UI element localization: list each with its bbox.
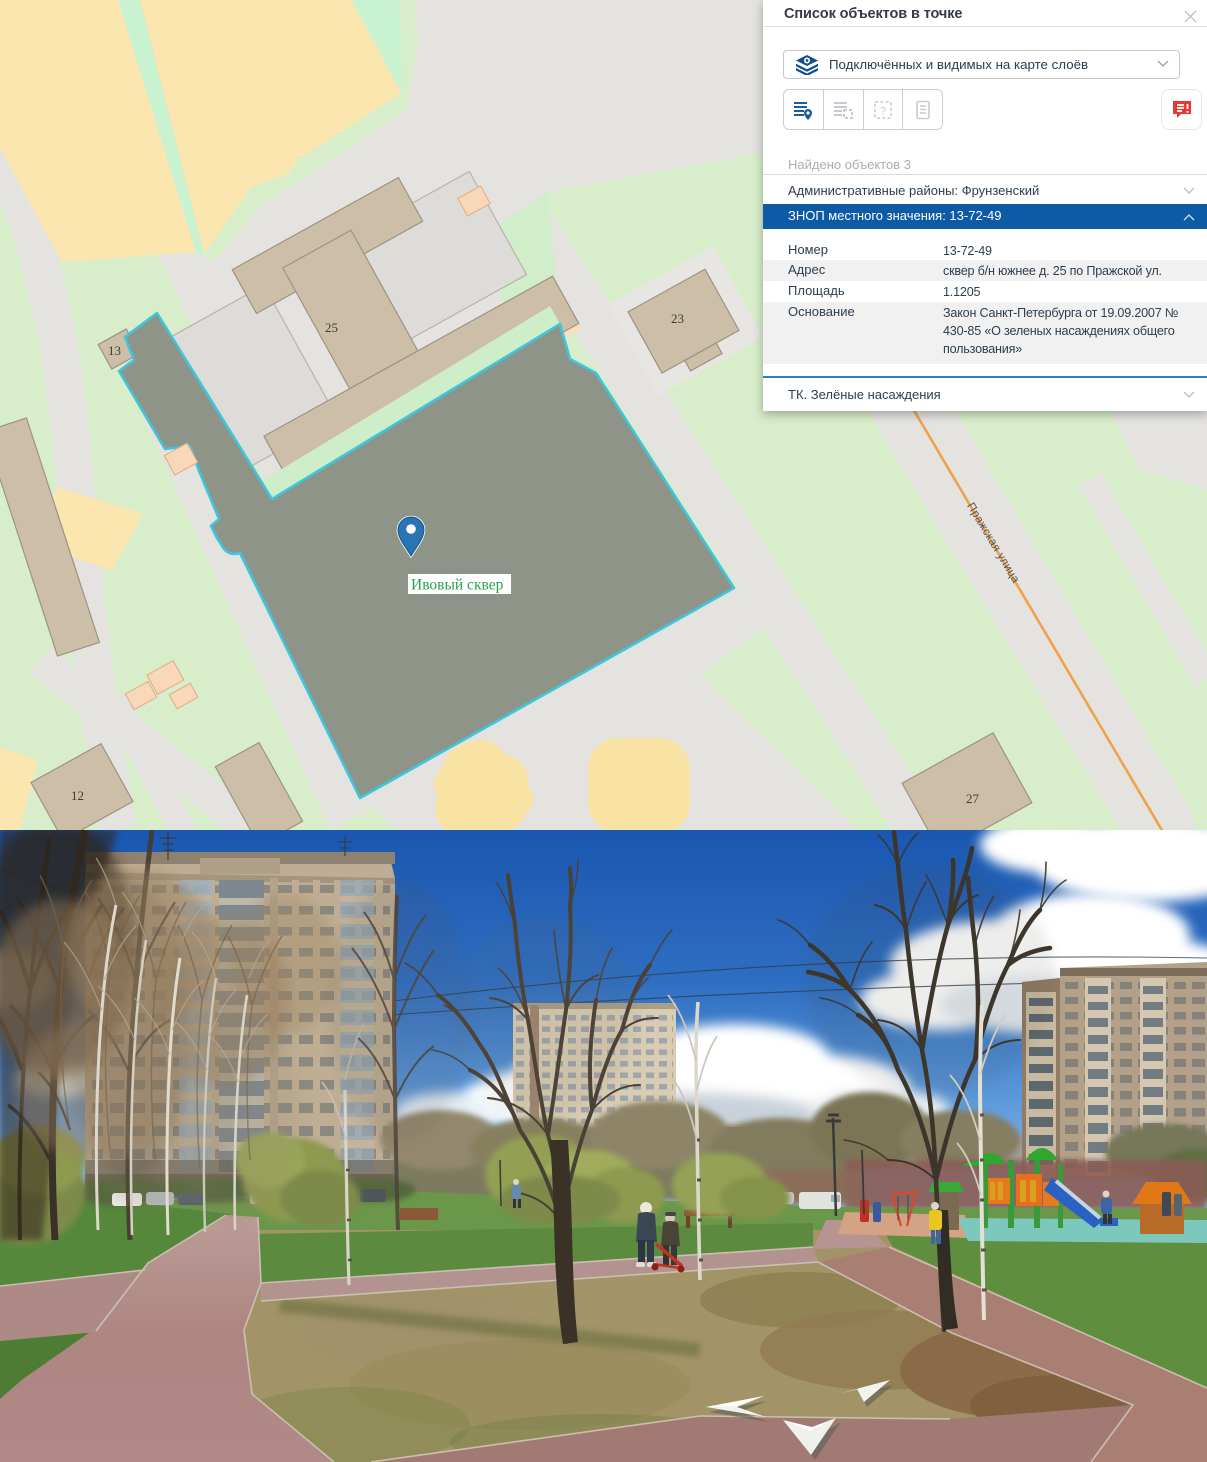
svg-text:13: 13 <box>108 343 121 358</box>
svg-text:23: 23 <box>671 311 684 326</box>
svg-text:?: ? <box>880 105 886 117</box>
svg-text:25: 25 <box>325 320 338 335</box>
svg-text:Ивовый сквер: Ивовый сквер <box>411 577 504 594</box>
svg-text:27: 27 <box>966 791 980 806</box>
svg-text:12: 12 <box>71 788 84 803</box>
